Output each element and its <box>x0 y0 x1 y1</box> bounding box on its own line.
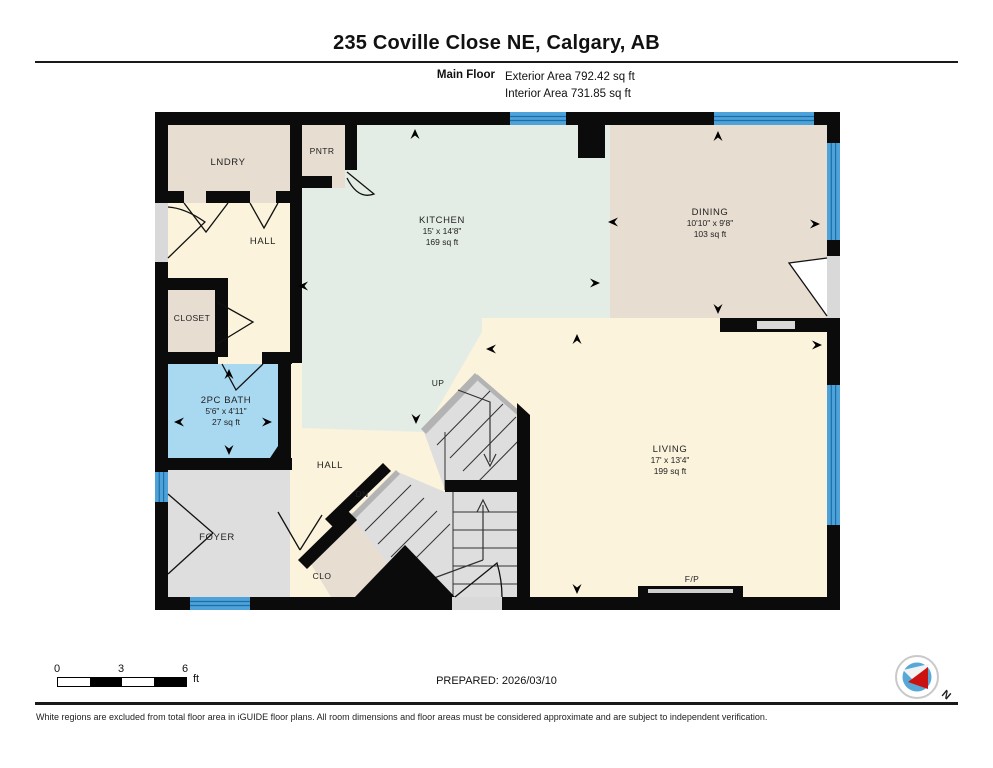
pantry-label: PNTR <box>310 146 335 156</box>
bath-wall <box>168 352 218 364</box>
hall-upper-label: HALL <box>250 236 276 247</box>
stairs-down-label: DN <box>355 489 368 499</box>
hall-right-wall <box>290 112 302 363</box>
scale-tick: 0 <box>54 663 60 675</box>
kitchen-label: KITCHEN <box>419 215 465 226</box>
patio-door-recess <box>827 256 840 318</box>
pantry-wall <box>300 176 332 188</box>
stair-wall <box>517 415 530 597</box>
dining-window-right <box>827 143 840 240</box>
floorplan-drawing: LNDRY PNTR HALL CLOSET 2PC BATH 5'6" x 4… <box>0 0 993 768</box>
fireplace-label: F/P <box>685 574 699 584</box>
clo-label: CLO <box>313 571 332 581</box>
living-dims: 17' x 13'4" <box>651 455 690 465</box>
stairs-up-label: UP <box>432 378 445 388</box>
laundry-wall <box>206 191 250 203</box>
dining-window-top <box>714 112 814 125</box>
stair-mid-wall <box>445 480 517 492</box>
living-area: 199 sq ft <box>654 466 687 476</box>
front-door-recess <box>452 597 502 610</box>
kitchen-window <box>510 112 566 125</box>
foyer-label: FOYER <box>199 532 235 543</box>
bath-label: 2PC BATH <box>201 395 252 406</box>
dining-dims: 10'10" x 9'8" <box>687 218 734 228</box>
kitchen-area: 169 sq ft <box>426 237 459 247</box>
pass-through <box>757 321 795 329</box>
bath-area: 27 sq ft <box>212 417 241 427</box>
living-window <box>827 385 840 525</box>
disclaimer-text: White regions are excluded from total fl… <box>36 712 966 722</box>
scale-tick: 6 <box>182 663 188 675</box>
scale-tick: 3 <box>118 663 124 675</box>
side-entry-recess <box>155 203 168 262</box>
kitchen-dims: 15' x 14'8" <box>423 226 462 236</box>
bath-dims: 5'6" x 4'11" <box>205 406 246 416</box>
laundry-label: LNDRY <box>210 157 245 168</box>
foyer-window-bottom <box>190 597 250 610</box>
compass-north-label: N <box>939 688 953 702</box>
closet-label: CLOSET <box>174 313 210 323</box>
foyer-window-left <box>155 472 168 502</box>
closet-wall <box>215 278 228 357</box>
floorplan-page: 235 Coville Close NE, Calgary, AB Main F… <box>0 0 993 768</box>
prepared-date: PREPARED: 2026/03/10 <box>0 675 993 687</box>
fireplace-inner <box>648 589 733 593</box>
stairs-down-floor <box>445 492 517 597</box>
laundry-wall <box>168 191 184 203</box>
hall-lower-label: HALL <box>317 460 343 471</box>
kitchen-dining-wall-stub <box>578 112 605 158</box>
laundry-wall <box>276 191 292 203</box>
living-label: LIVING <box>653 444 688 455</box>
pantry-wall <box>345 112 357 170</box>
dining-area: 103 sq ft <box>694 229 727 239</box>
dining-label: DINING <box>692 207 729 218</box>
footer-divider <box>35 702 958 705</box>
